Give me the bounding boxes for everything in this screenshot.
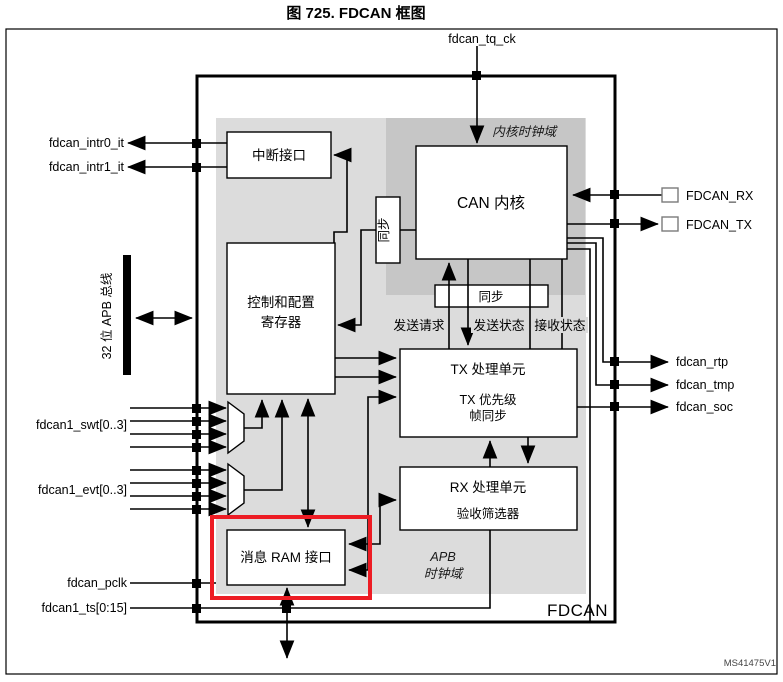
rx-handler-label-line1: RX 处理单元 xyxy=(450,480,527,495)
tx-handler-label-line1: TX 处理单元 xyxy=(450,362,525,377)
sync-horizontal-label: 同步 xyxy=(478,290,503,304)
junction-dot xyxy=(192,492,201,501)
core-clock-domain-label: 内核时钟域 xyxy=(492,124,558,139)
fdcan-block-diagram-page: 图 725. FDCAN 框图 xyxy=(0,0,783,682)
tx-handler-label-line2: TX 优先级 xyxy=(460,393,517,407)
soc-label: fdcan_soc xyxy=(676,400,733,414)
fdcan-rx-pad xyxy=(662,188,678,202)
interrupt-interface-label: 中断接口 xyxy=(252,147,306,163)
intr1-label: fdcan_intr1_it xyxy=(49,160,125,174)
junction-dot xyxy=(610,190,619,199)
junction-dot xyxy=(192,604,201,613)
evt-label: fdcan1_evt[0..3] xyxy=(38,483,127,497)
can-core-label: CAN 内核 xyxy=(457,194,525,212)
junction-dot xyxy=(192,430,201,439)
tmp-label: fdcan_tmp xyxy=(676,378,734,392)
fdcan-rx-label: FDCAN_RX xyxy=(686,189,754,203)
fdcan-block-label: FDCAN xyxy=(547,601,608,620)
tx-status-label: 发送状态 xyxy=(473,318,524,333)
fdcan-tx-label: FDCAN_TX xyxy=(686,218,753,232)
junction-dot xyxy=(610,380,619,389)
apb-bus-label: 32 位 APB 总线 xyxy=(99,272,114,359)
apb-clock-domain-label-line2: 时钟域 xyxy=(424,566,465,581)
junction-dot xyxy=(610,219,619,228)
junction-dot xyxy=(282,604,291,613)
registers-label-line1: 控制和配置 xyxy=(247,295,315,310)
message-ram-interface-label: 消息 RAM 接口 xyxy=(240,549,332,565)
pclk-label: fdcan_pclk xyxy=(67,576,128,590)
junction-dot xyxy=(192,443,201,452)
registers-label-line2: 寄存器 xyxy=(261,314,302,330)
junction-dot xyxy=(192,579,201,588)
tx-handler-label-line3: 帧同步 xyxy=(469,409,507,423)
rtp-label: fdcan_rtp xyxy=(676,355,728,369)
junction-dot xyxy=(192,505,201,514)
figure-title: 图 725. FDCAN 框图 xyxy=(286,4,425,22)
intr0-label: fdcan_intr0_it xyxy=(49,136,125,150)
junction-dot xyxy=(610,402,619,411)
fdcan-tx-pad xyxy=(662,217,678,231)
apb-clock-domain-label-line1: APB xyxy=(429,549,456,564)
junction-dot xyxy=(472,71,481,80)
junction-dot xyxy=(610,357,619,366)
tx-request-label: 发送请求 xyxy=(393,318,444,333)
junction-dot xyxy=(192,404,201,413)
junction-dot xyxy=(192,466,201,475)
apb-bus-bar xyxy=(123,255,131,375)
tq-ck-label: fdcan_tq_ck xyxy=(448,32,516,46)
junction-dot xyxy=(192,163,201,172)
sync-vertical-label: 同步 xyxy=(377,217,391,242)
swt-label: fdcan1_swt[0..3] xyxy=(36,418,127,432)
junction-dot xyxy=(192,417,201,426)
rx-handler-label-line2: 验收筛选器 xyxy=(457,506,520,521)
junction-dot xyxy=(192,139,201,148)
ts-label: fdcan1_ts[0:15] xyxy=(42,601,127,615)
fdcan-block-diagram: 图 725. FDCAN 框图 xyxy=(0,0,783,682)
rx-status-label: 接收状态 xyxy=(534,318,585,333)
junction-dot xyxy=(192,479,201,488)
figure-code: MS41475V1 xyxy=(724,658,776,669)
